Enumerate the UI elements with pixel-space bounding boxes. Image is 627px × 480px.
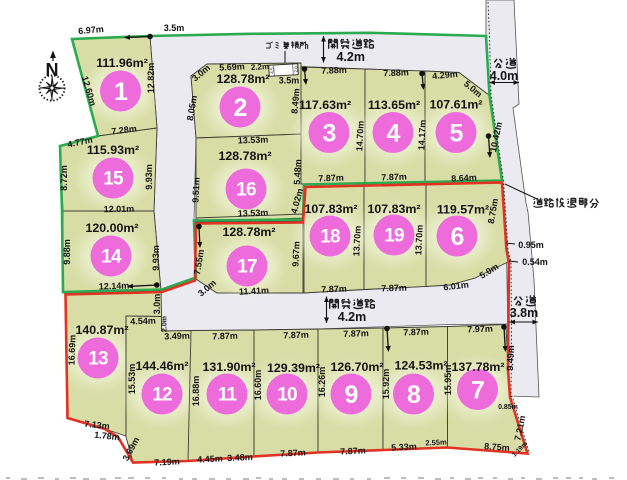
svg-text:13.53m: 13.53m (238, 207, 269, 218)
svg-text:9.67m: 9.67m (290, 241, 301, 267)
svg-text:4.54m: 4.54m (130, 316, 156, 327)
svg-text:129.39m²: 129.39m² (267, 361, 320, 375)
svg-text:113.65m²: 113.65m² (368, 98, 420, 112)
svg-text:4.5: 4.5 (269, 67, 274, 74)
svg-text:1: 1 (114, 78, 128, 106)
svg-text:9.51m: 9.51m (190, 177, 201, 203)
svg-text:124.53m²: 124.53m² (394, 359, 447, 373)
svg-text:6: 6 (450, 223, 463, 251)
svg-text:18: 18 (320, 227, 340, 248)
svg-text:4.2m: 4.2m (338, 310, 367, 324)
svg-text:7.87m: 7.87m (340, 445, 366, 456)
svg-text:0.95m: 0.95m (518, 240, 544, 250)
svg-text:126.70m²: 126.70m² (330, 360, 383, 374)
svg-text:2: 2 (233, 94, 246, 122)
svg-text:107.83m²: 107.83m² (304, 202, 357, 216)
svg-text:16.88m: 16.88m (191, 376, 201, 407)
svg-text:128.78m²: 128.78m² (222, 225, 275, 239)
svg-text:7: 7 (471, 377, 484, 405)
svg-text:4.0m: 4.0m (490, 69, 519, 83)
svg-text:14.70m: 14.70m (354, 120, 366, 151)
svg-text:12.01m: 12.01m (104, 204, 135, 215)
svg-text:7.87m: 7.87m (381, 283, 407, 294)
svg-text:4.2m: 4.2m (336, 50, 365, 64)
svg-text:2.2m: 2.2m (251, 62, 270, 72)
svg-text:7.88m: 7.88m (383, 67, 409, 78)
svg-text:16: 16 (236, 180, 256, 201)
svg-text:13.70m: 13.70m (351, 225, 363, 256)
svg-text:9.93m: 9.93m (151, 245, 161, 271)
svg-text:3.0m: 3.0m (152, 294, 162, 315)
svg-text:3.48m: 3.48m (227, 452, 253, 463)
svg-text:7.19m: 7.19m (154, 456, 180, 467)
svg-text:9.88m: 9.88m (62, 239, 72, 265)
svg-text:13: 13 (88, 349, 108, 370)
svg-text:3.5m: 3.5m (164, 23, 185, 33)
svg-text:8: 8 (407, 381, 421, 409)
svg-text:13.70m: 13.70m (413, 224, 425, 255)
svg-text:5.48m: 5.48m (292, 159, 303, 185)
svg-text:128.78m²: 128.78m² (216, 72, 269, 86)
svg-text:144.46m²: 144.46m² (135, 359, 188, 373)
svg-text:7.87m: 7.87m (318, 173, 344, 184)
svg-text:117.63m²: 117.63m² (299, 98, 351, 112)
svg-text:15: 15 (103, 169, 124, 190)
svg-text:5.69m: 5.69m (219, 61, 245, 72)
svg-text:2.0: 2.0 (293, 66, 298, 73)
svg-text:2.55m: 2.55m (425, 437, 447, 447)
svg-text:12.14m: 12.14m (99, 280, 130, 291)
svg-text:5.33m: 5.33m (391, 441, 417, 452)
svg-text:7.87m: 7.87m (403, 327, 429, 338)
svg-text:137.78m²: 137.78m² (451, 360, 504, 374)
svg-text:N: N (46, 60, 59, 80)
svg-text:7.87m: 7.87m (212, 331, 238, 342)
svg-text:13.53m: 13.53m (238, 134, 269, 145)
svg-text:14.17m: 14.17m (416, 119, 428, 150)
svg-text:131.90m²: 131.90m² (202, 360, 255, 374)
svg-text:8.75m: 8.75m (484, 441, 510, 453)
svg-text:3: 3 (322, 120, 335, 148)
svg-text:107.83m²: 107.83m² (367, 202, 420, 216)
svg-text:128.78m²: 128.78m² (218, 149, 271, 163)
svg-text:7.97m: 7.97m (467, 324, 493, 335)
svg-text:3.49m: 3.49m (164, 331, 190, 342)
svg-text:14: 14 (101, 247, 122, 268)
svg-text:11.41m: 11.41m (239, 285, 270, 297)
svg-text:2.0m: 2.0m (162, 316, 169, 332)
svg-text:111.96m²: 111.96m² (96, 56, 148, 70)
svg-text:16.69m: 16.69m (66, 335, 77, 366)
svg-text:7.88m: 7.88m (321, 65, 347, 76)
svg-text:120.00m²: 120.00m² (85, 221, 138, 235)
svg-text:3.8m: 3.8m (510, 306, 539, 320)
svg-text:7.87m: 7.87m (280, 447, 306, 458)
svg-text:9.93m: 9.93m (144, 164, 154, 190)
svg-text:10: 10 (277, 385, 297, 406)
svg-text:9: 9 (344, 381, 357, 409)
svg-text:115.93m²: 115.93m² (87, 143, 139, 157)
svg-text:7.87m: 7.87m (283, 330, 309, 341)
svg-text:7.87m: 7.87m (343, 328, 369, 339)
svg-text:4.45m: 4.45m (197, 453, 223, 464)
svg-text:8.64m: 8.64m (451, 172, 477, 183)
svg-text:0.54m: 0.54m (522, 257, 548, 267)
svg-text:8.72m: 8.72m (59, 165, 69, 191)
svg-text:11: 11 (218, 385, 238, 406)
svg-text:17: 17 (237, 257, 257, 278)
svg-text:7.87m: 7.87m (321, 284, 347, 295)
svg-text:119.57m²: 119.57m² (437, 203, 489, 217)
svg-text:4: 4 (386, 120, 400, 148)
svg-text:12: 12 (152, 385, 172, 406)
svg-text:107.61m²: 107.61m² (429, 98, 482, 112)
svg-text:3.5m: 3.5m (279, 76, 300, 86)
svg-text:16.60m: 16.60m (253, 370, 263, 401)
svg-text:5: 5 (449, 120, 463, 148)
svg-text:0.85m: 0.85m (498, 404, 518, 411)
svg-text:7.87m: 7.87m (381, 172, 407, 183)
svg-text:19: 19 (384, 226, 404, 247)
svg-text:140.87m²: 140.87m² (75, 323, 128, 337)
